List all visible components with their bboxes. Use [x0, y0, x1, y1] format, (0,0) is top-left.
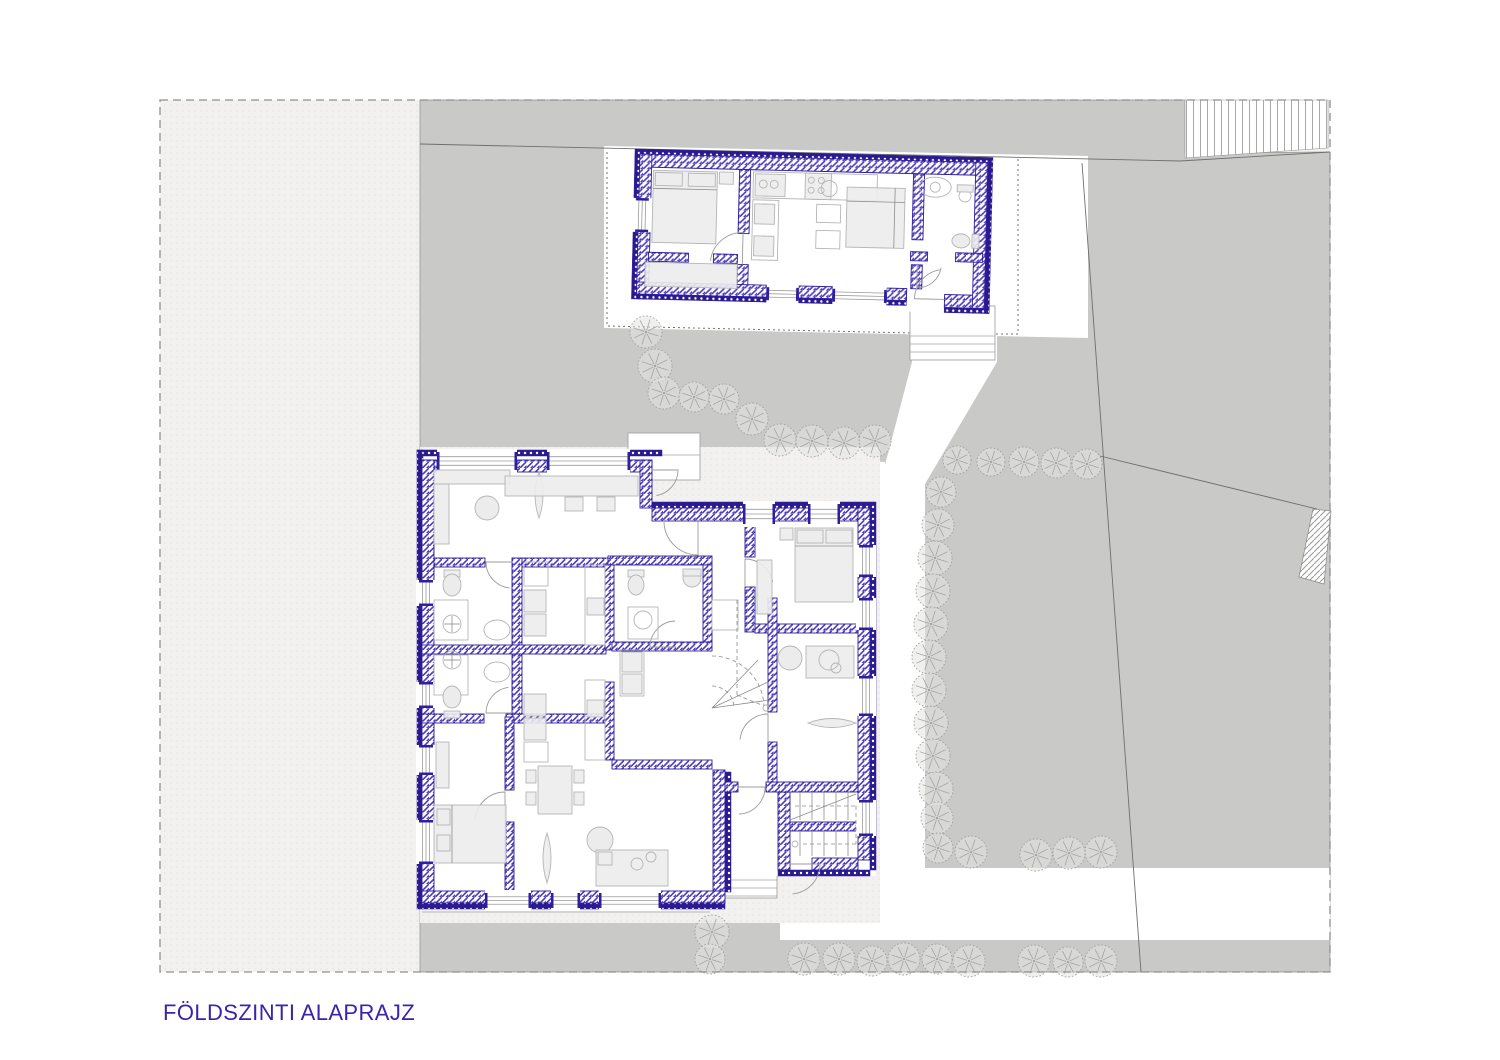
furniture-item: [587, 827, 613, 853]
furniture-item: [524, 614, 546, 636]
wall-segment: [955, 253, 982, 263]
tree-icon: [926, 477, 956, 507]
furniture-item: [688, 173, 715, 187]
furniture-item: [524, 718, 546, 740]
window: [547, 449, 630, 473]
window: [743, 501, 775, 527]
furniture-item: [526, 792, 536, 805]
furniture-item: [622, 652, 642, 672]
main-house-building: [416, 449, 876, 911]
furniture-item: [655, 172, 682, 186]
tree-icon: [922, 509, 954, 541]
furniture-item: [437, 809, 450, 825]
tree-icon: [764, 424, 796, 456]
tree-icon: [695, 944, 725, 974]
tree-icon: [788, 943, 820, 975]
tree-icon: [919, 772, 953, 806]
wall-segment: [778, 792, 790, 870]
tree-icon: [953, 945, 985, 977]
window: [416, 745, 436, 775]
tree-icon: [914, 706, 948, 740]
furniture-item: [846, 187, 905, 248]
site-plan-page: FÖLDSZINTI ALAPRAJZ: [0, 0, 1500, 1060]
window: [856, 598, 876, 630]
furniture-item: [437, 835, 450, 851]
window: [856, 676, 876, 716]
tree-icon: [1009, 447, 1039, 477]
tree-icon: [922, 944, 952, 974]
furniture-item: [434, 484, 449, 544]
wall-segment: [648, 252, 688, 262]
wall-segment: [608, 556, 712, 565]
window: [437, 449, 517, 473]
tree-icon: [888, 943, 920, 975]
furniture-item: [753, 236, 773, 256]
tree-icon: [630, 316, 662, 348]
window: [832, 286, 886, 306]
wall-segment: [768, 598, 777, 712]
window: [808, 501, 840, 527]
tree-icon: [648, 377, 680, 409]
furniture-item: [526, 770, 536, 783]
neighbor-roof-hatch: [1185, 100, 1328, 158]
wall-segment: [505, 717, 514, 790]
wall-segment: [713, 254, 737, 264]
wall-segment: [910, 252, 927, 261]
wall-segment: [798, 286, 832, 299]
window: [485, 890, 531, 911]
wall-segment: [713, 770, 725, 891]
tree-icon: [823, 943, 855, 975]
tree-icon: [1053, 837, 1085, 869]
furniture-item: [443, 574, 461, 596]
furniture-item: [565, 497, 583, 511]
wall-segment: [725, 782, 738, 792]
window: [856, 545, 876, 577]
tree-icon: [1072, 449, 1102, 479]
furniture-item: [952, 234, 970, 248]
tree-icon: [859, 425, 891, 457]
wall-segment: [703, 565, 712, 642]
furniture-item: [622, 674, 642, 694]
window: [416, 580, 436, 606]
furniture-item: [806, 646, 854, 678]
tree-icon: [1020, 839, 1052, 871]
furniture-item: [683, 569, 701, 576]
tree-icon: [914, 607, 948, 641]
wall-segment: [790, 822, 858, 831]
wall-segment: [522, 558, 608, 567]
window: [599, 890, 661, 911]
window: [416, 820, 436, 864]
tree-icon: [918, 541, 952, 575]
furniture-item: [524, 694, 546, 716]
wall-segment: [745, 587, 755, 632]
furniture-item: [587, 598, 604, 615]
tree-icon: [736, 403, 768, 435]
floor-plan-canvas: [0, 0, 1500, 1060]
furniture-item: [805, 173, 832, 200]
furniture-item: [754, 204, 774, 224]
wall-segment: [605, 565, 614, 650]
furniture-item: [826, 530, 852, 543]
tree-icon: [912, 673, 946, 707]
wall-segment: [768, 742, 777, 782]
furniture-item: [719, 172, 733, 184]
plan-title: FÖLDSZINTI ALAPRAJZ: [163, 1000, 415, 1026]
furniture-item: [538, 766, 572, 814]
tree-icon: [796, 425, 828, 457]
wall-segment: [737, 264, 748, 284]
furniture-item: [443, 686, 461, 708]
tree-icon: [828, 427, 860, 459]
furniture-item: [505, 476, 638, 496]
window: [766, 284, 798, 304]
furniture-item: [712, 600, 738, 630]
tree-icon: [1041, 448, 1071, 478]
wall-segment: [422, 645, 606, 654]
tree-icon: [1018, 945, 1050, 977]
furniture-item: [778, 646, 802, 670]
window: [856, 800, 876, 836]
furniture-item: [797, 530, 823, 543]
tree-icon: [955, 836, 987, 868]
wall-segment: [517, 460, 547, 472]
wall-segment: [512, 558, 522, 718]
wall-segment: [912, 174, 925, 240]
furniture-item: [574, 792, 584, 805]
furniture-item: [444, 711, 460, 718]
furniture-item: [957, 185, 973, 192]
furniture-item: [597, 497, 615, 511]
tree-icon: [679, 382, 709, 412]
guest-house-building: [630, 149, 993, 314]
window: [551, 890, 580, 911]
furniture-item: [598, 852, 612, 865]
tree-icon: [709, 384, 739, 414]
tree-icon: [1085, 836, 1117, 868]
tree-icon: [916, 574, 950, 608]
furniture-item: [434, 470, 510, 484]
furniture-item: [645, 262, 738, 288]
tree-icon: [943, 446, 971, 474]
furniture-item: [757, 560, 772, 614]
tree-icon: [977, 448, 1005, 476]
furniture-item: [475, 496, 499, 520]
tree-icon: [916, 739, 950, 773]
window: [632, 198, 652, 232]
furniture-item: [628, 575, 644, 595]
tree-icon: [912, 640, 946, 674]
furniture-item: [587, 700, 604, 717]
furniture-item: [972, 234, 979, 248]
wall-segment: [766, 782, 858, 792]
furniture-item: [574, 770, 584, 783]
insulation-strip: [778, 870, 870, 876]
furniture-item: [436, 742, 449, 788]
tree-icon: [921, 802, 953, 834]
wall-segment: [640, 460, 652, 508]
wall-segment: [434, 558, 485, 567]
wall-segment: [605, 682, 614, 760]
furniture-item: [524, 590, 546, 612]
window: [416, 682, 436, 708]
wall-segment: [738, 169, 751, 233]
wall-segment: [612, 760, 712, 769]
wall-segment: [886, 288, 906, 300]
tree-icon: [923, 833, 953, 863]
furniture-item: [780, 528, 793, 540]
